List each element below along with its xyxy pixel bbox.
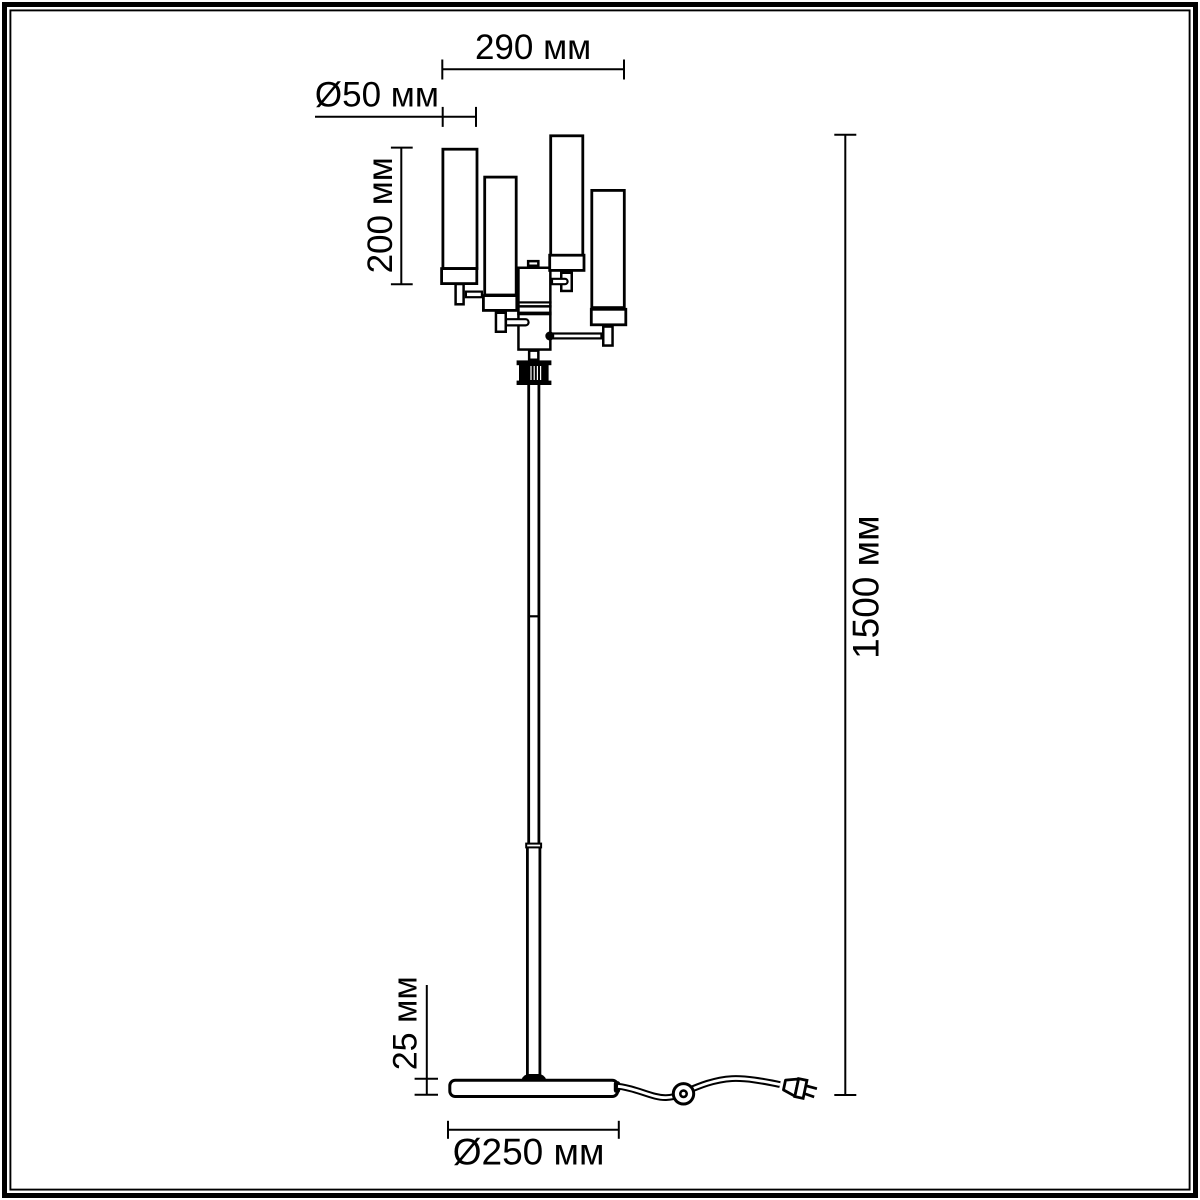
svg-text:200 мм: 200 мм (361, 157, 400, 273)
svg-text:25 мм: 25 мм (387, 976, 425, 1070)
svg-text:Ø50 мм: Ø50 мм (315, 75, 439, 114)
svg-text:290 мм: 290 мм (475, 28, 591, 67)
svg-text:Ø250 мм: Ø250 мм (453, 1131, 605, 1172)
svg-text:1500 мм: 1500 мм (846, 515, 887, 658)
